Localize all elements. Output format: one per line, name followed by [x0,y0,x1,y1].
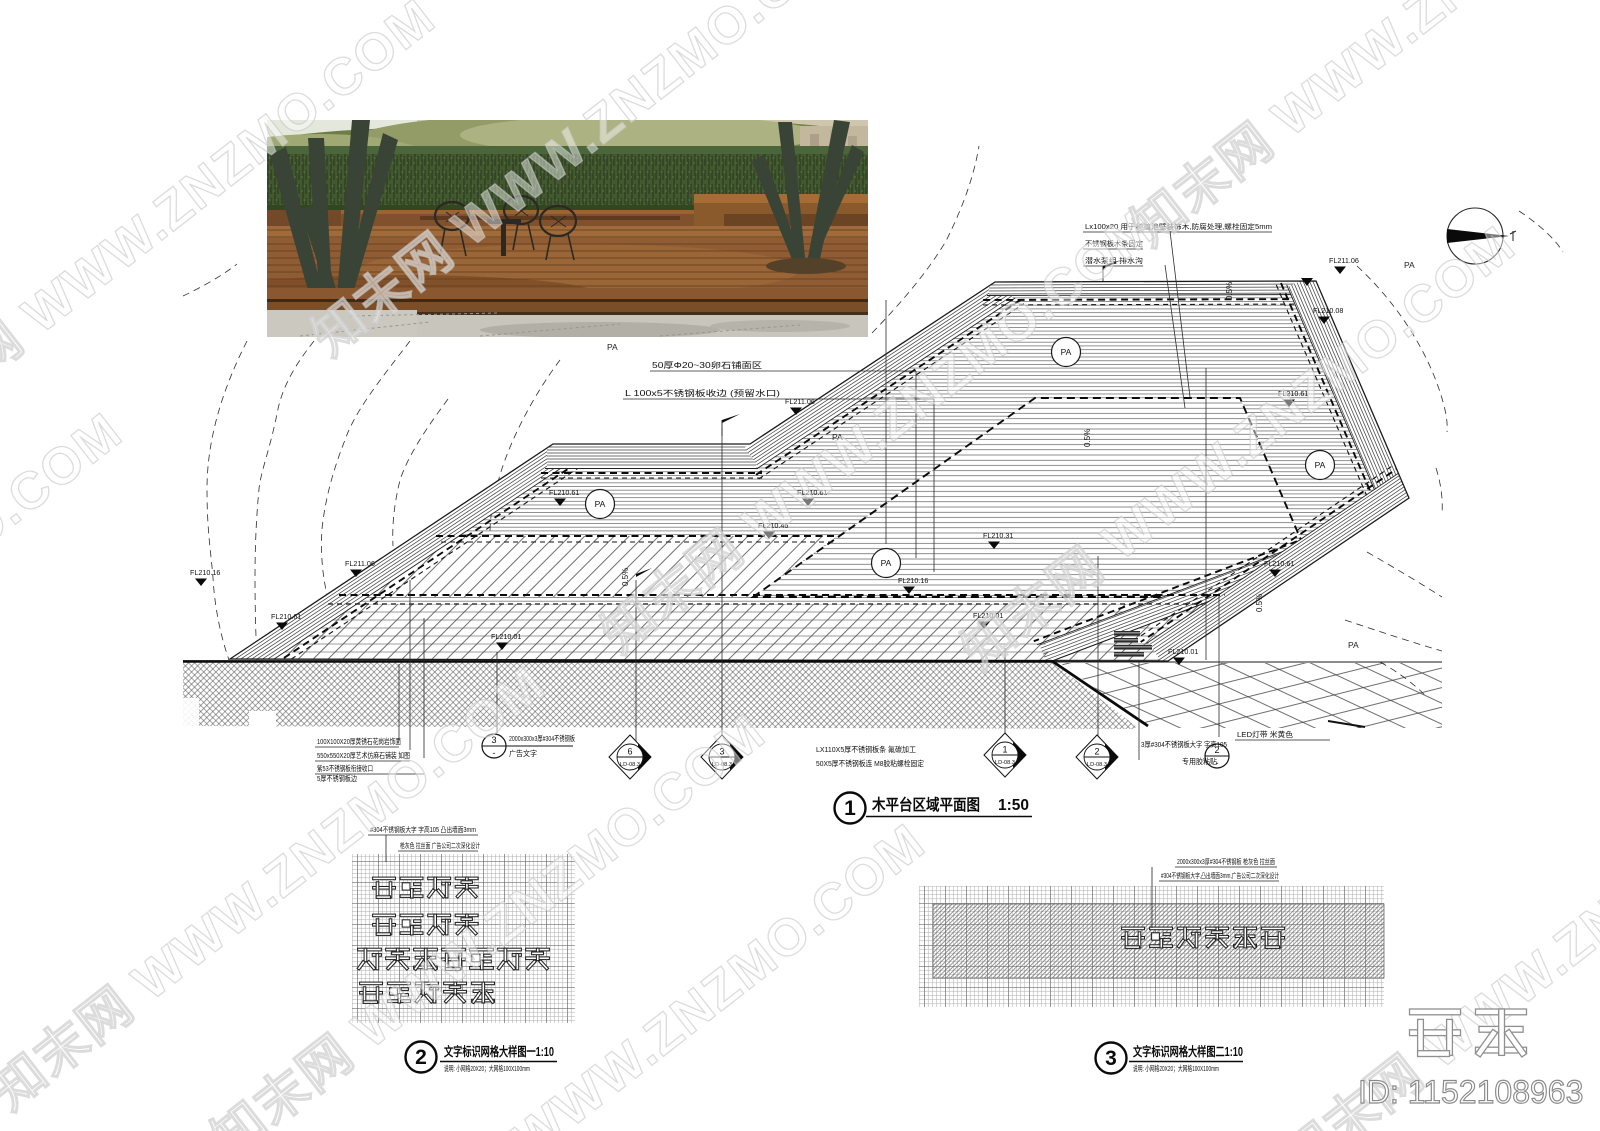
svg-text:FL210.16: FL210.16 [190,568,220,577]
svg-text:0.5%: 0.5% [1225,282,1234,300]
svg-text:6: 6 [627,747,632,757]
svg-text:PA: PA [607,342,618,352]
svg-text:2000x300x3厚#304不锈钢板: 2000x300x3厚#304不锈钢板 [509,734,575,743]
svg-text:ID: 1152108963: ID: 1152108963 [1358,1074,1583,1110]
svg-text:LD-08.3: LD-08.3 [620,762,640,768]
svg-text:L 100x5不锈钢板收边 (预留水口): L 100x5不锈钢板收边 (预留水口) [625,388,780,398]
svg-text:3: 3 [1105,1047,1117,1070]
svg-text:100X100X20厚黄锈石花岗岩饰面: 100X100X20厚黄锈石花岗岩饰面 [317,737,401,746]
svg-text:0.5%: 0.5% [1083,429,1092,447]
svg-text:1: 1 [1002,745,1007,755]
svg-text:LD-08.3: LD-08.3 [1087,762,1107,768]
svg-text:文字标识网格大样图二1:10: 文字标识网格大样图二1:10 [1133,1044,1243,1059]
svg-text:FL210.01: FL210.01 [491,632,521,641]
svg-text:文字标识网格大样图一1:10: 文字标识网格大样图一1:10 [444,1044,554,1059]
svg-text:2: 2 [415,1046,427,1069]
svg-text:PA: PA [1404,260,1415,270]
svg-text:2000x300x3厚#304不锈钢板 枪灰色 拉丝面: 2000x300x3厚#304不锈钢板 枪灰色 拉丝面 [1177,857,1275,866]
svg-text:FL210.16: FL210.16 [898,576,928,585]
svg-text:FL210.08: FL210.08 [1313,306,1343,315]
svg-text:枪灰色 拉丝面 广告公司二次深化设计: 枪灰色 拉丝面 广告公司二次深化设计 [400,841,480,850]
svg-text:PA: PA [1315,460,1326,470]
svg-text:FL210.61: FL210.61 [271,612,301,621]
svg-text:FL211.06: FL211.06 [1329,256,1359,265]
svg-text:FL210.01: FL210.01 [1168,647,1198,656]
svg-text:专用胶粘贴: 专用胶粘贴 [1182,757,1218,766]
svg-text:FL211.06: FL211.06 [345,559,375,568]
svg-text:#304不锈钢板大字,凸出墙面3mm,广告公司二次深化设计: #304不锈钢板大字,凸出墙面3mm,广告公司二次深化设计 [1161,871,1279,880]
svg-text:50X5厚不锈钢板连 M8胶粘螺栓固定: 50X5厚不锈钢板连 M8胶粘螺栓固定 [816,759,925,768]
svg-text:木平台区域平面图: 木平台区域平面图 [871,795,980,814]
svg-text:说明: 小网格20X20；大网格100X100mm: 说明: 小网格20X20；大网格100X100mm [444,1063,530,1073]
svg-text:PA: PA [595,499,606,509]
svg-text:3厚#304不锈钢板大字 字高105: 3厚#304不锈钢板大字 字高105 [1141,740,1227,749]
svg-text:LED灯带 米黄色: LED灯带 米黄色 [1237,730,1294,739]
svg-text:PA: PA [881,558,892,568]
svg-text:FL211.06: FL211.06 [785,397,815,406]
svg-text:FL210.61: FL210.61 [1264,559,1294,568]
svg-text:FL210.61: FL210.61 [549,488,579,497]
svg-text:0.5%: 0.5% [1255,594,1264,612]
svg-text:0.5%: 0.5% [621,568,630,586]
svg-text:2: 2 [1094,747,1099,757]
svg-text:紫53不锈钢板衔接收口: 紫53不锈钢板衔接收口 [317,764,373,773]
svg-text:LX110X5厚不锈钢板条 氟碳加工: LX110X5厚不锈钢板条 氟碳加工 [816,745,917,754]
svg-text:PA: PA [1061,347,1072,357]
svg-text:1: 1 [844,797,856,820]
svg-text:1:50: 1:50 [998,797,1029,814]
svg-text:5厚不锈钢板边: 5厚不锈钢板边 [317,774,357,783]
svg-text:PA: PA [1348,640,1359,650]
svg-text:FL210.31: FL210.31 [983,531,1013,540]
svg-text:50厚Φ20~30卵石铺面区: 50厚Φ20~30卵石铺面区 [652,360,762,370]
svg-text:说明: 小网格20X20；大网格100X100mm: 说明: 小网格20X20；大网格100X100mm [1133,1063,1219,1073]
svg-text:LD-08.3: LD-08.3 [995,760,1015,766]
svg-text:广告文字: 广告文字 [509,749,537,758]
